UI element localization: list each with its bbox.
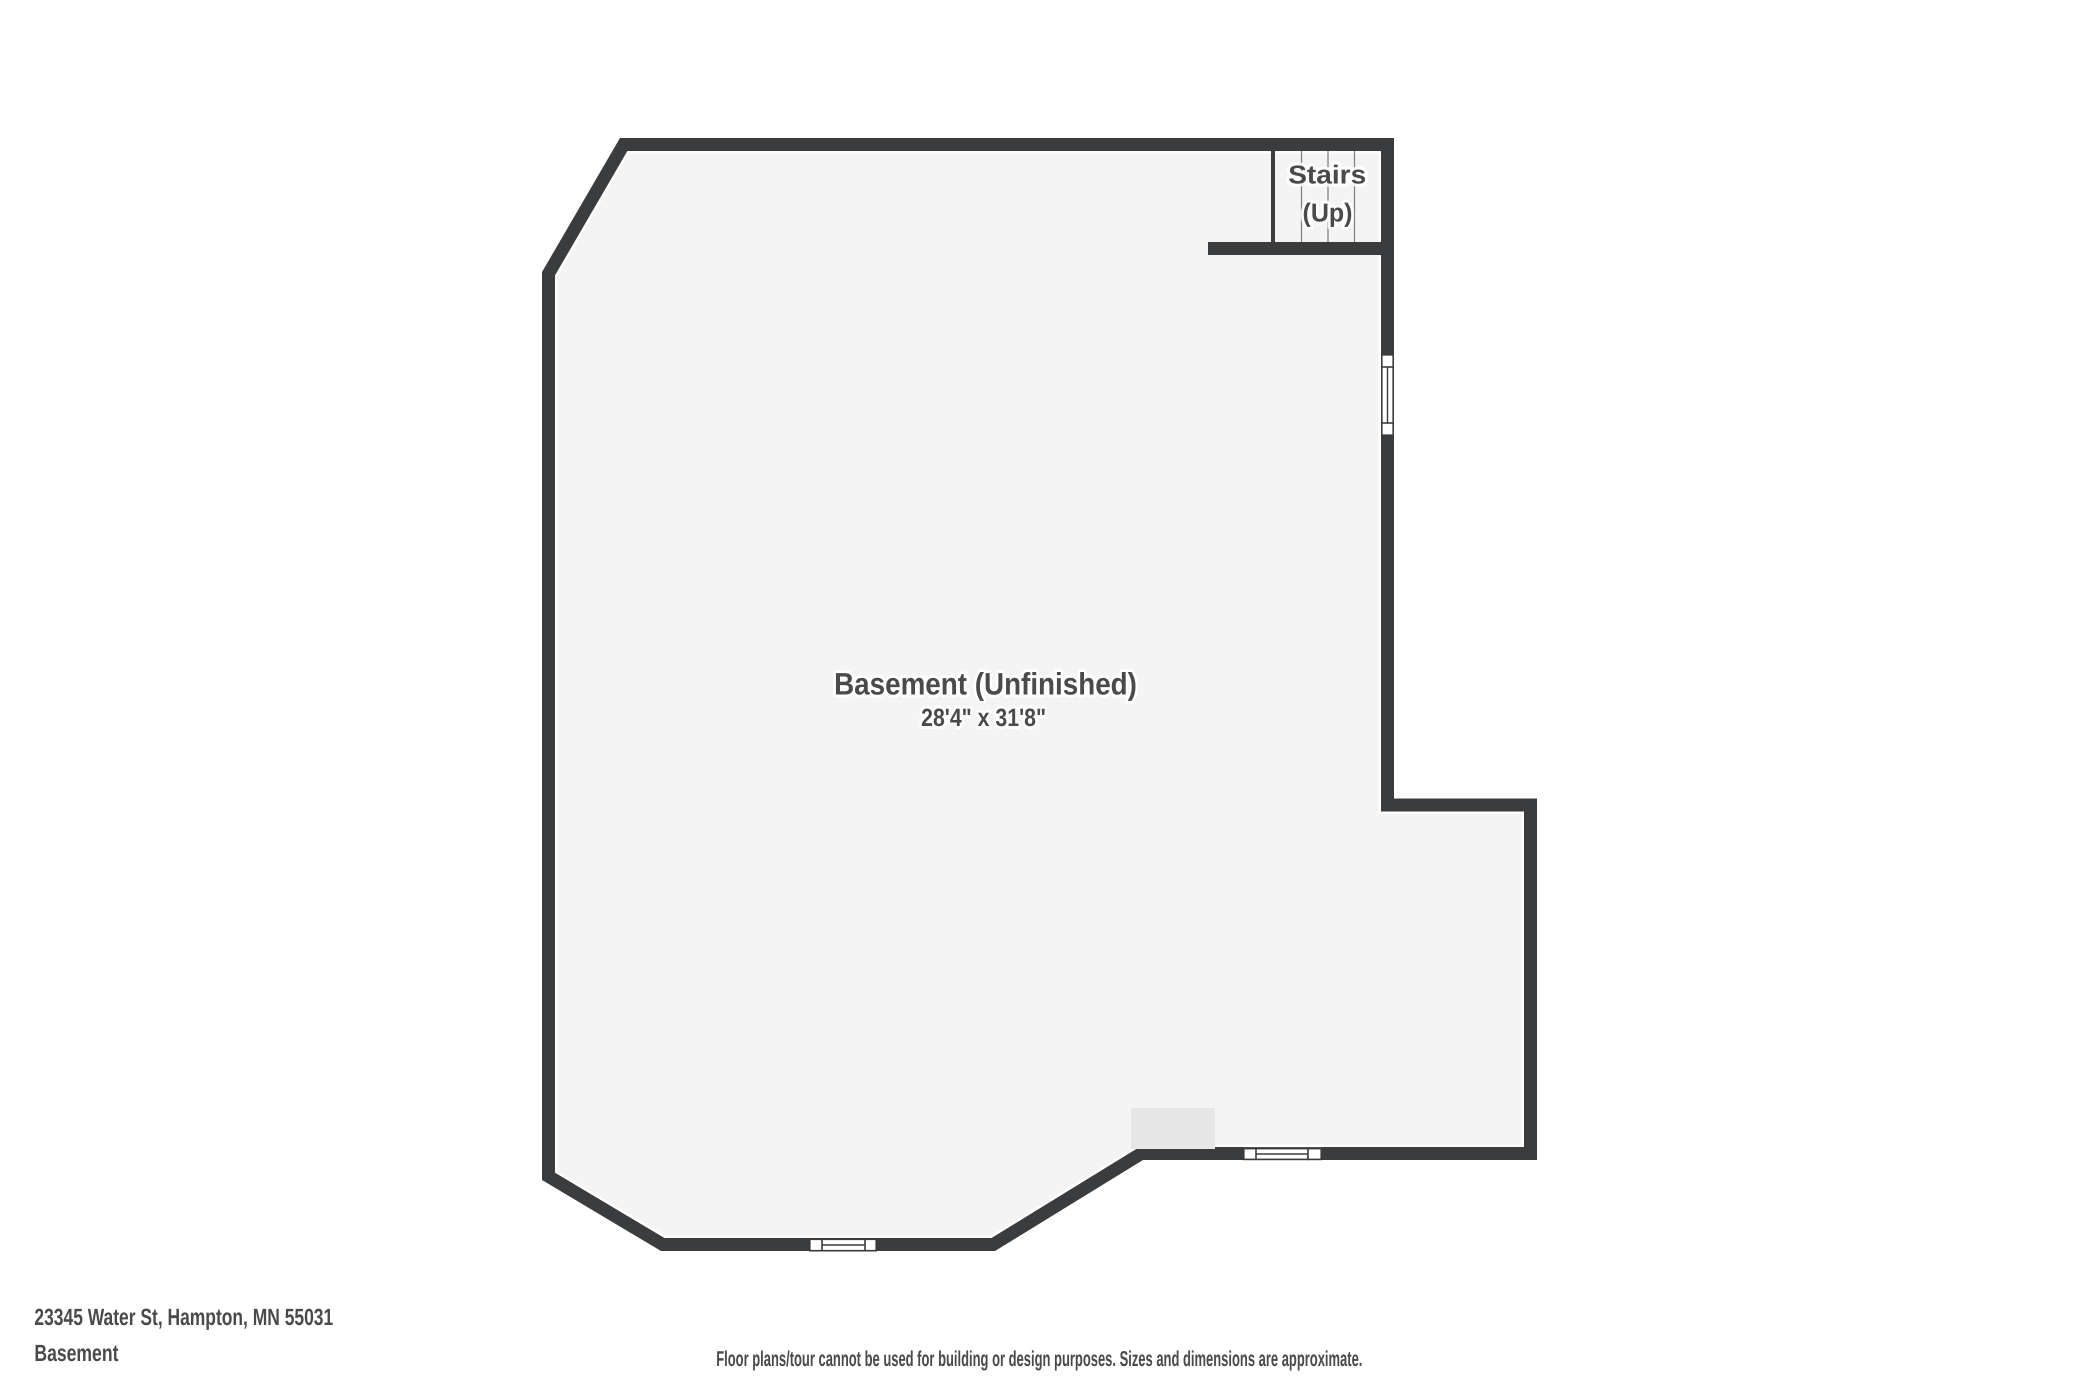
svg-text:Stairs: Stairs <box>1288 160 1366 190</box>
svg-text:Basement (Unfinished): Basement (Unfinished) <box>834 667 1137 702</box>
svg-text:28'4" x 31'8": 28'4" x 31'8" <box>921 704 1046 732</box>
svg-text:23345 Water St, Hampton, MN 55: 23345 Water St, Hampton, MN 55031 <box>34 1304 333 1330</box>
svg-text:Basement: Basement <box>34 1340 118 1366</box>
svg-text:Floor plans/tour cannot be use: Floor plans/tour cannot be used for buil… <box>716 1347 1362 1371</box>
svg-text:(Up): (Up) <box>1302 198 1352 228</box>
